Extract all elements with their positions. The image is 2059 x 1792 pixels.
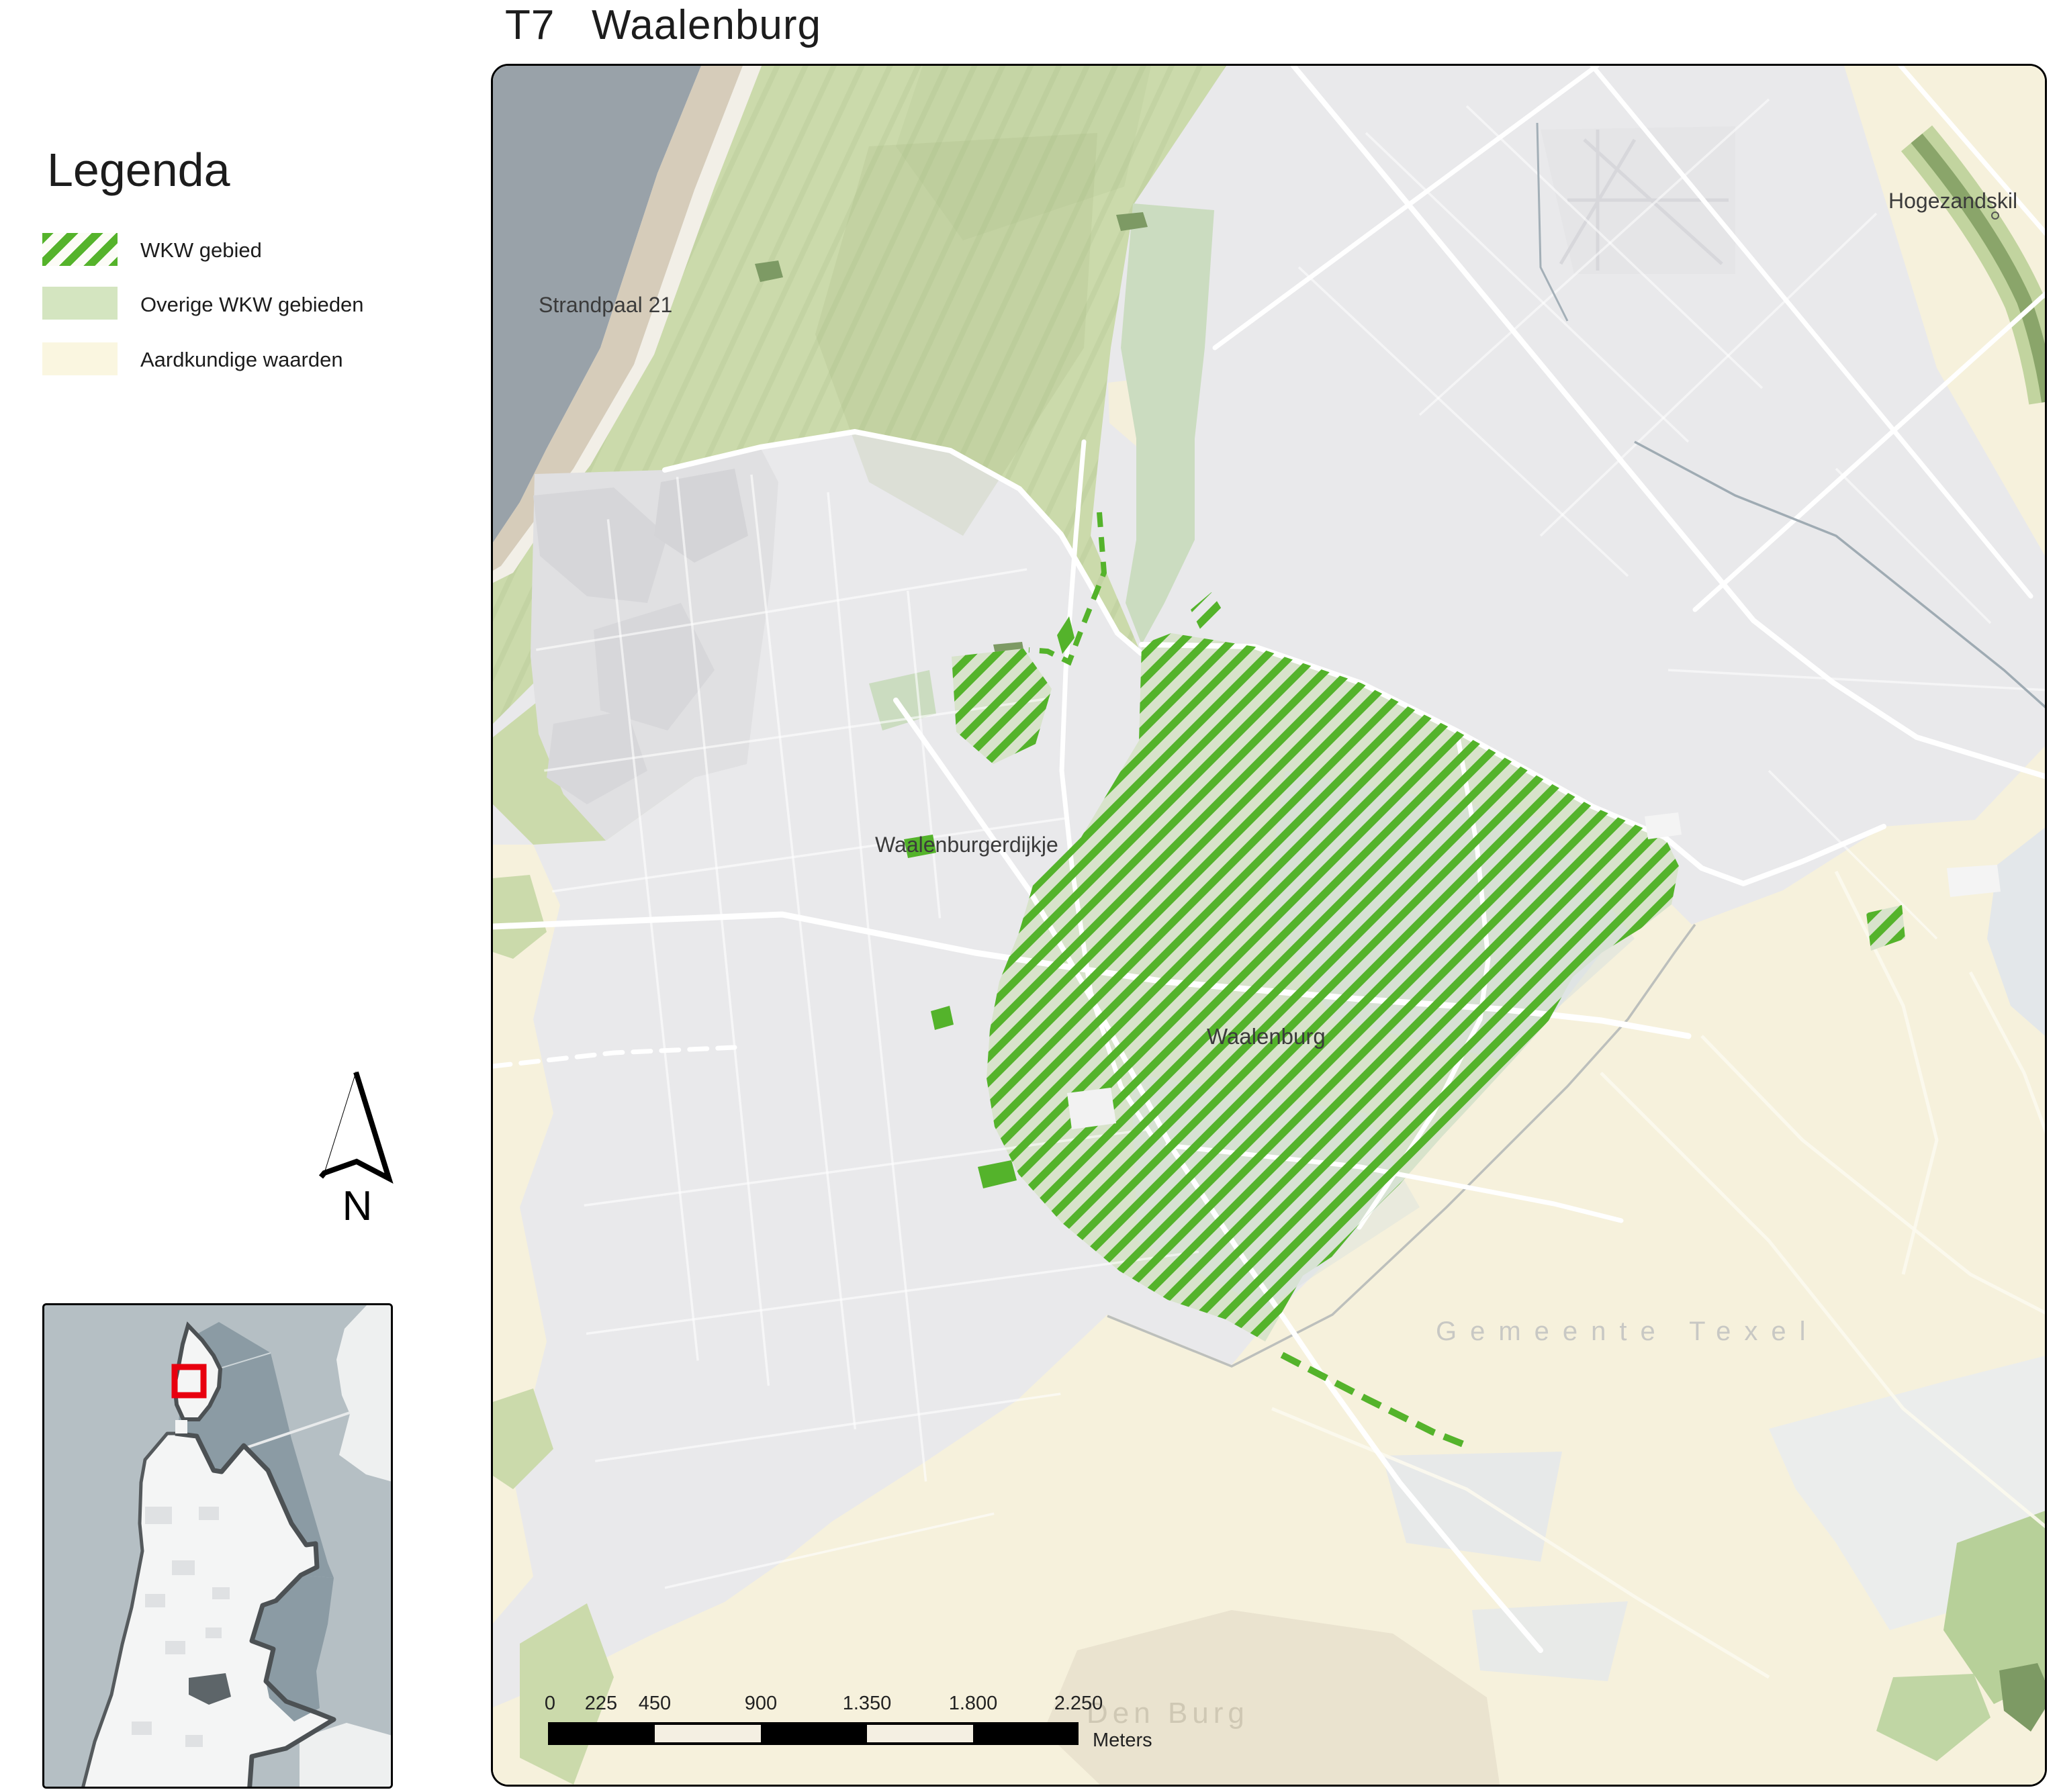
svg-text:Den Burg: Den Burg: [1087, 1697, 1249, 1730]
svg-text:Meters: Meters: [1093, 1730, 1152, 1751]
svg-text:Gemeente Texel: Gemeente Texel: [1436, 1317, 1819, 1346]
svg-text:2.250: 2.250: [1054, 1693, 1103, 1714]
svg-text:N: N: [342, 1183, 373, 1225]
svg-text:1.350: 1.350: [843, 1693, 892, 1714]
svg-text:Waalenburgerdijkje: Waalenburgerdijkje: [875, 833, 1058, 857]
svg-text:900: 900: [745, 1693, 777, 1714]
svg-text:Waalenburg: Waalenburg: [1207, 1024, 1326, 1049]
svg-text:Strandpaal 21: Strandpaal 21: [539, 293, 672, 317]
svg-text:0: 0: [545, 1693, 555, 1714]
svg-text:Hogezandskil: Hogezandskil: [1888, 189, 2017, 213]
svg-text:450: 450: [639, 1693, 671, 1714]
svg-text:1.800: 1.800: [949, 1693, 998, 1714]
svg-text:225: 225: [585, 1693, 617, 1714]
